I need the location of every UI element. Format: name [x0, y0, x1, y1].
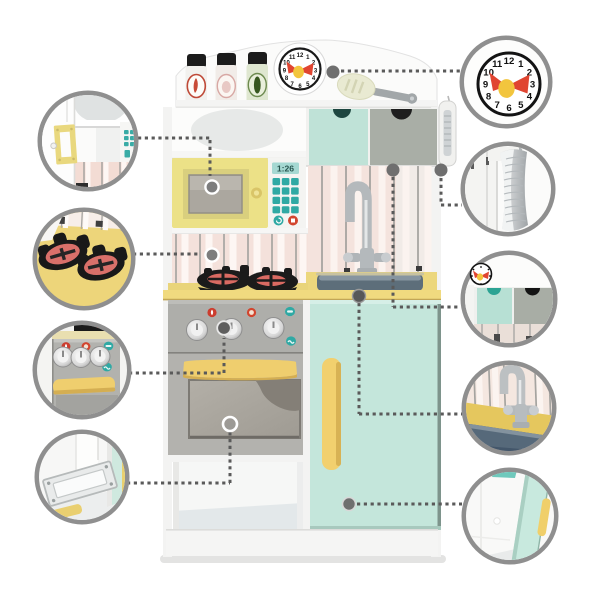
svg-text:1: 1: [518, 59, 524, 70]
svg-text:8: 8: [486, 91, 492, 102]
svg-text:11: 11: [492, 59, 503, 70]
svg-text:5: 5: [518, 100, 524, 111]
svg-text:9: 9: [483, 80, 488, 91]
svg-text:6: 6: [506, 103, 511, 114]
svg-text:3: 3: [530, 80, 535, 91]
svg-text:12: 12: [297, 53, 304, 59]
svg-text:12: 12: [504, 56, 515, 67]
svg-text:4: 4: [527, 91, 533, 102]
svg-text:11: 11: [289, 55, 296, 61]
svg-text:1:26: 1:26: [277, 164, 294, 174]
svg-text:7: 7: [495, 100, 500, 111]
